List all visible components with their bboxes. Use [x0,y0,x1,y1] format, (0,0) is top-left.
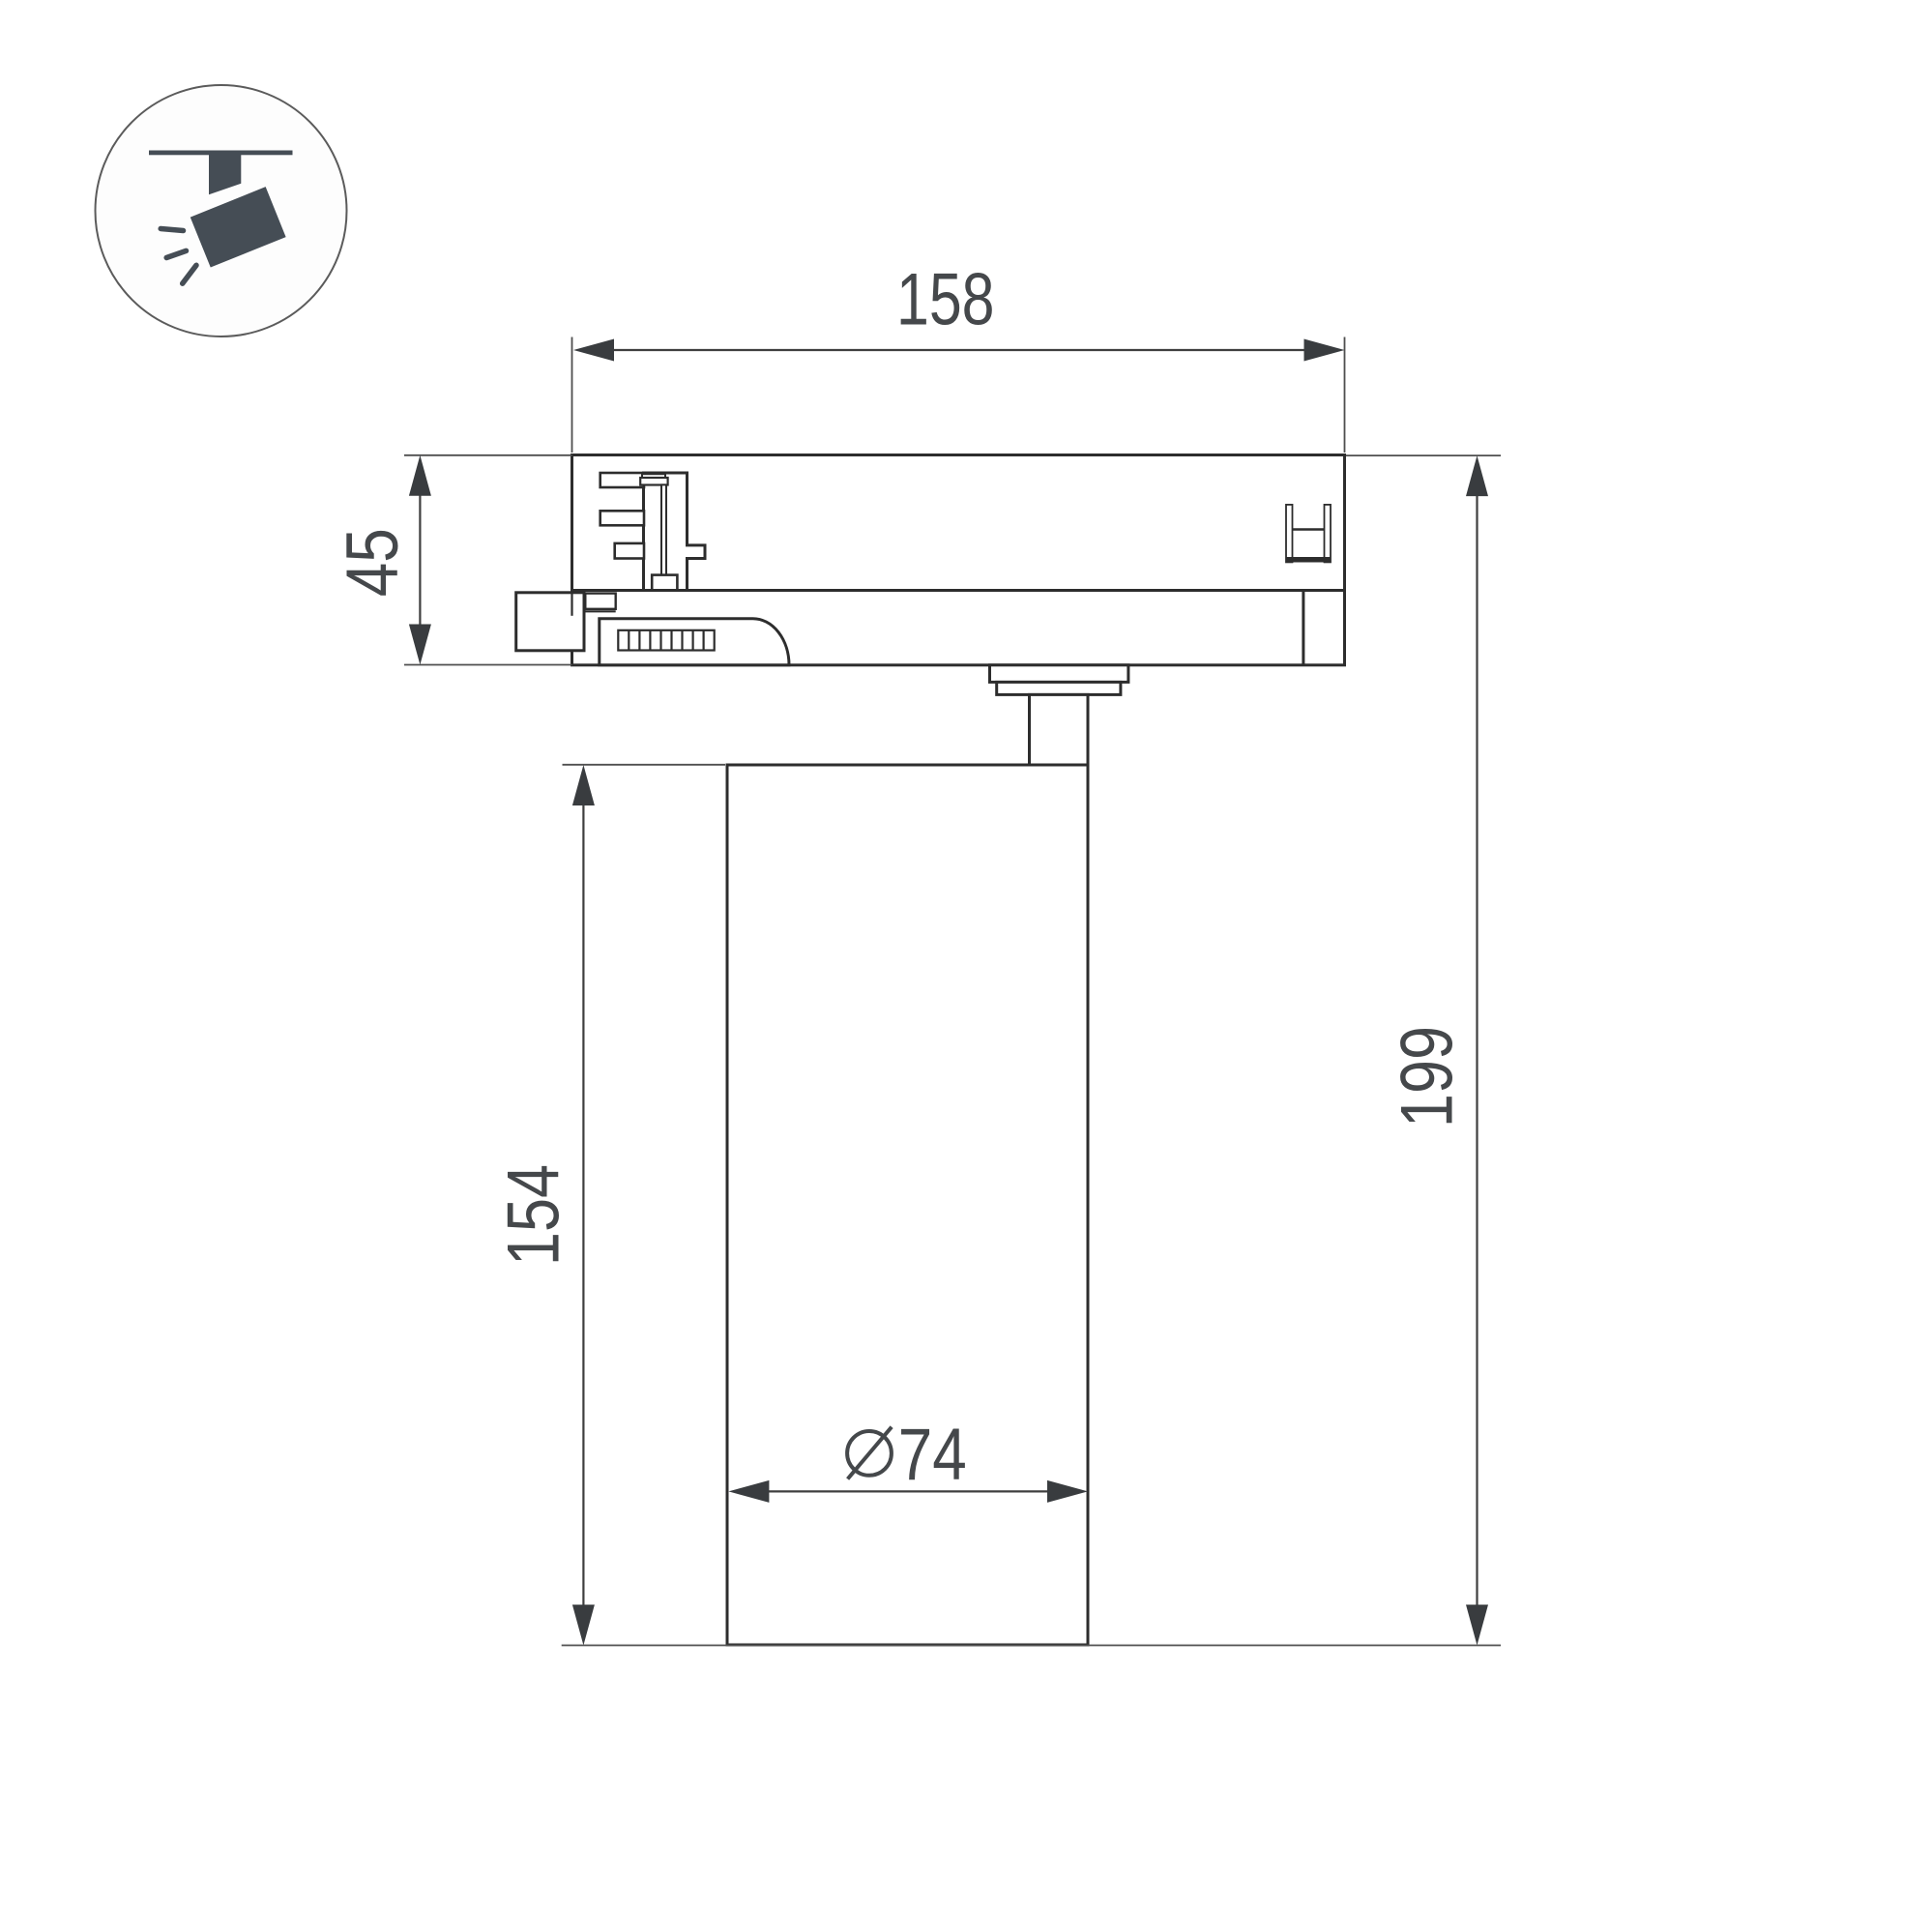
svg-text:45: 45 [332,528,414,597]
svg-text:74: 74 [898,1414,967,1496]
svg-text:199: 199 [1387,1026,1469,1127]
svg-text:158: 158 [896,259,995,341]
svg-text:154: 154 [492,1164,574,1266]
